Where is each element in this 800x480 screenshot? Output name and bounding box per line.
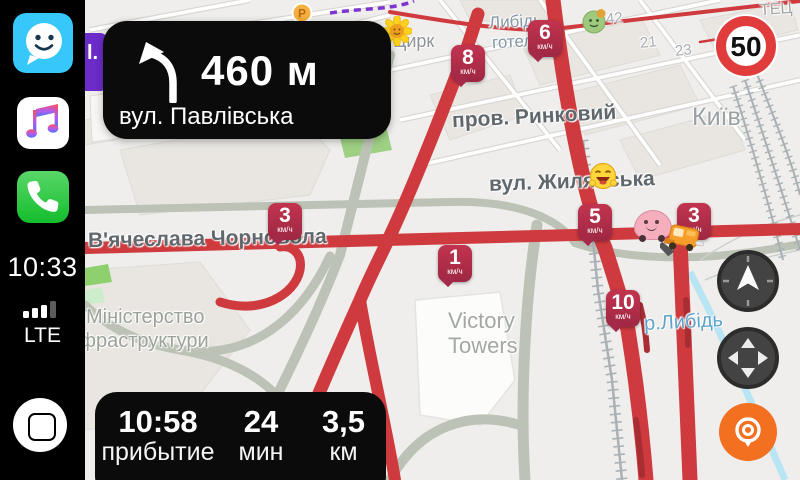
navigation-instruction: 460 м вул. Павлівська	[103, 21, 391, 139]
remaining-distance: 3,5	[301, 406, 386, 438]
carplay-screen: ТЕЦЛибідьготельЦирк422123пров. РинковийК…	[0, 0, 800, 480]
turn-left-curve-icon	[137, 41, 197, 103]
duration-value: 24	[221, 406, 301, 438]
next-street-name: вул. Павлівська	[119, 103, 379, 131]
status-time: 10:33	[0, 252, 85, 283]
home-square-icon	[28, 413, 56, 441]
center-location-button[interactable]	[717, 401, 779, 463]
svg-text:P: P	[298, 7, 306, 21]
carplay-sidebar: 10:33 LTE	[0, 0, 85, 480]
music-app-icon[interactable]	[17, 97, 69, 149]
pan-map-button[interactable]	[717, 327, 779, 389]
green-face-mood-icon	[582, 8, 608, 34]
arrival-label: прибытие	[95, 438, 221, 466]
phone-app-icon[interactable]	[17, 171, 69, 223]
distance-label: км	[301, 438, 386, 466]
duration-label: мин	[221, 438, 301, 466]
compass-button[interactable]	[717, 250, 779, 312]
eta-panel[interactable]: 10:58 прибытие 24 мин 3,5 км	[95, 392, 386, 480]
svg-text:50: 50	[730, 31, 761, 62]
home-button[interactable]	[13, 398, 67, 452]
arrival-time: 10:58	[95, 406, 221, 438]
signal-strength-icon	[23, 300, 63, 318]
network-type: LTE	[0, 324, 85, 348]
waze-app-icon[interactable]	[13, 13, 73, 73]
speed-limit-sign: 50	[713, 13, 779, 79]
construction-truck-icon	[660, 220, 706, 260]
distance-to-turn: 460 м	[201, 47, 381, 95]
laughing-mood-icon	[588, 162, 618, 192]
